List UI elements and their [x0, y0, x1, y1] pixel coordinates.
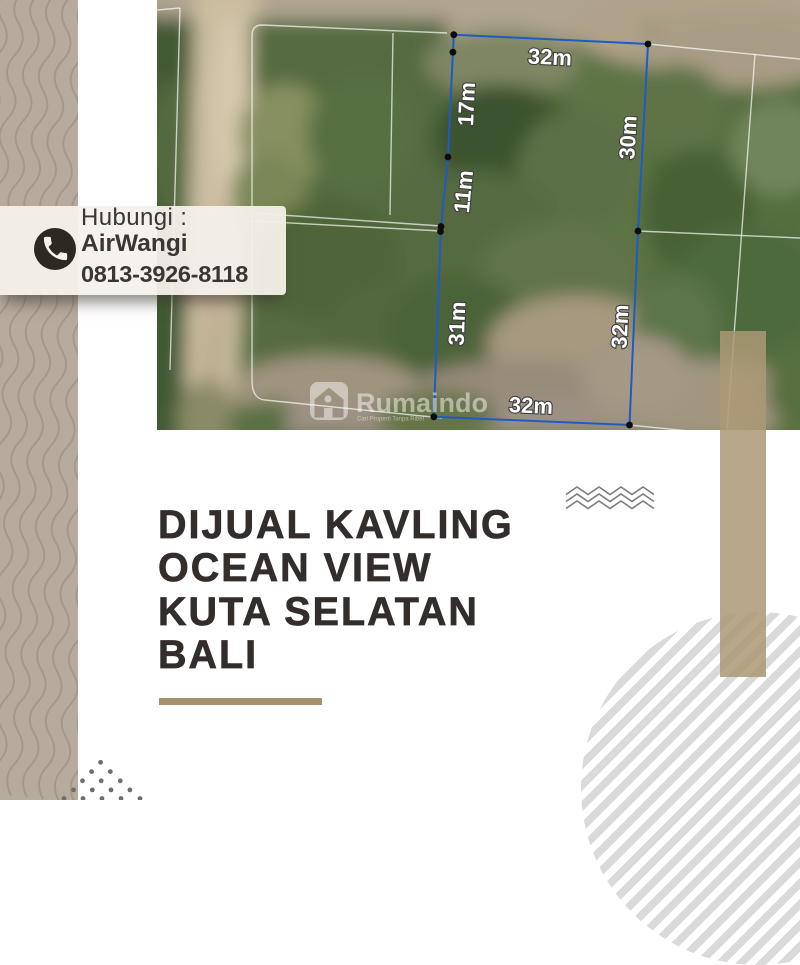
svg-text:Rumaindo: Rumaindo [356, 388, 488, 418]
svg-text:11m: 11m [449, 169, 478, 214]
svg-text:32m: 32m [527, 43, 572, 70]
svg-text:30m: 30m [614, 115, 641, 160]
svg-text:17m: 17m [453, 81, 480, 126]
svg-text:32m: 32m [607, 304, 634, 349]
svg-text:Cari Properti Tanpa Ribet: Cari Properti Tanpa Ribet [357, 417, 425, 423]
svg-text:31m: 31m [444, 301, 471, 346]
svg-text:32m: 32m [508, 392, 553, 419]
